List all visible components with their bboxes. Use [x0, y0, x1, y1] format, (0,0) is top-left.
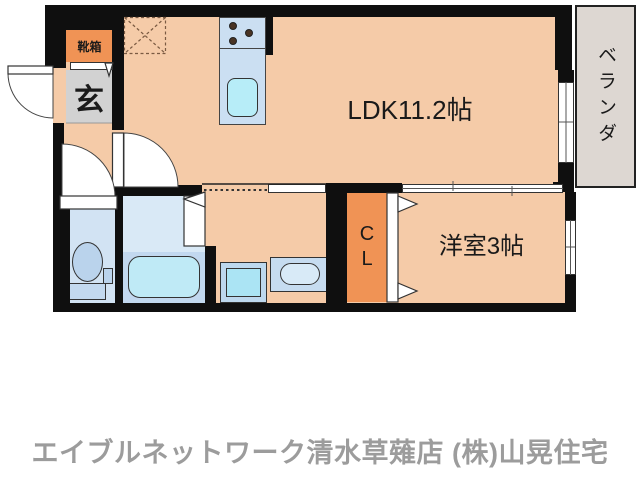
ldk-label: LDK11.2帖	[310, 92, 510, 124]
entrance-label: 玄	[66, 70, 112, 123]
closet-door-triangle-top	[398, 196, 417, 212]
closet-door-triangle-bottom	[398, 283, 417, 299]
toilet-door-arc	[62, 144, 115, 197]
closet-label: CL	[347, 203, 387, 291]
toilet-door-leaf	[60, 196, 117, 209]
shoebox-label: 靴箱	[65, 30, 114, 62]
ldk-door-leaf	[113, 133, 124, 187]
closet-door	[387, 193, 398, 302]
entrance-door-leaf	[8, 66, 53, 74]
ldk-door-arc	[124, 133, 178, 187]
western-room-label: 洋室3帖	[398, 228, 565, 258]
floorplan-canvas: ベランダ	[0, 0, 640, 480]
entrance-door-arc	[8, 73, 53, 118]
refrigerator-space	[125, 18, 166, 54]
footer-store-name: エイブルネットワーク清水草薙店 (株)山晃住宅	[0, 432, 640, 468]
